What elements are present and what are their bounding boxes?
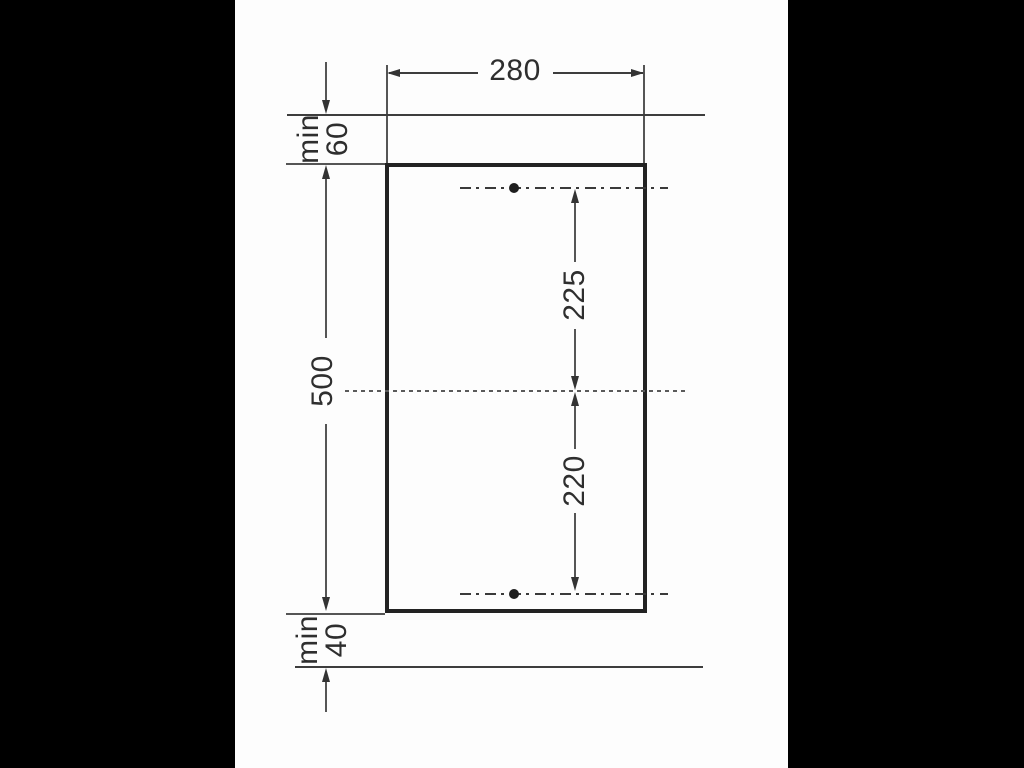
lower-hole-axis-line — [460, 593, 668, 595]
dim225-arrow-up-icon — [571, 189, 579, 203]
dim220-line-upper — [574, 406, 576, 449]
height-dimension-line-upper — [325, 179, 327, 338]
min40-arrow-up-icon — [322, 668, 330, 682]
width-arrow-left-icon — [387, 69, 400, 77]
width-dimension-line-right — [553, 72, 643, 74]
dim220-label: 220 — [560, 455, 590, 507]
installation-diagram: 280 min 60 500 225 220 — [235, 0, 788, 768]
width-dimension-line-left — [389, 72, 478, 74]
dim225-arrow-down-icon — [571, 376, 579, 390]
upper-hole-axis-line — [460, 187, 668, 189]
dim225-line-lower — [574, 329, 576, 376]
bottom-clearance-label: min 40 — [293, 615, 351, 665]
letterboxed-screenshot: 280 min 60 500 225 220 — [0, 0, 1024, 768]
bottom-clearance-qualifier: min — [293, 615, 322, 665]
min60-arrow-line — [325, 62, 327, 100]
min60-arrow-down-icon — [322, 100, 330, 114]
height-dimension-line-lower — [325, 424, 327, 597]
cutout-rectangle — [385, 163, 647, 613]
height-dimension-label: 500 — [308, 355, 338, 407]
top-clearance-label: min 60 — [294, 114, 352, 164]
height-arrow-down-icon — [322, 597, 330, 611]
width-arrow-right-icon — [631, 69, 644, 77]
top-clearance-value: 60 — [323, 114, 352, 164]
height-tick-top — [286, 163, 385, 165]
lower-mounting-hole — [509, 589, 519, 599]
bottom-clearance-value: 40 — [322, 615, 351, 665]
center-axis-line — [345, 390, 685, 392]
dim225-label: 225 — [560, 269, 590, 321]
dim220-arrow-up-icon — [571, 392, 579, 406]
dim225-line-upper — [574, 203, 576, 262]
min40-arrow-line — [325, 682, 327, 712]
dim220-arrow-down-icon — [571, 577, 579, 591]
upper-mounting-hole — [509, 183, 519, 193]
countertop-bottom-line — [295, 666, 703, 668]
height-arrow-up-icon — [322, 165, 330, 179]
top-clearance-qualifier: min — [294, 114, 323, 164]
width-dimension-label: 280 — [489, 56, 541, 86]
dim220-line-lower — [574, 513, 576, 577]
